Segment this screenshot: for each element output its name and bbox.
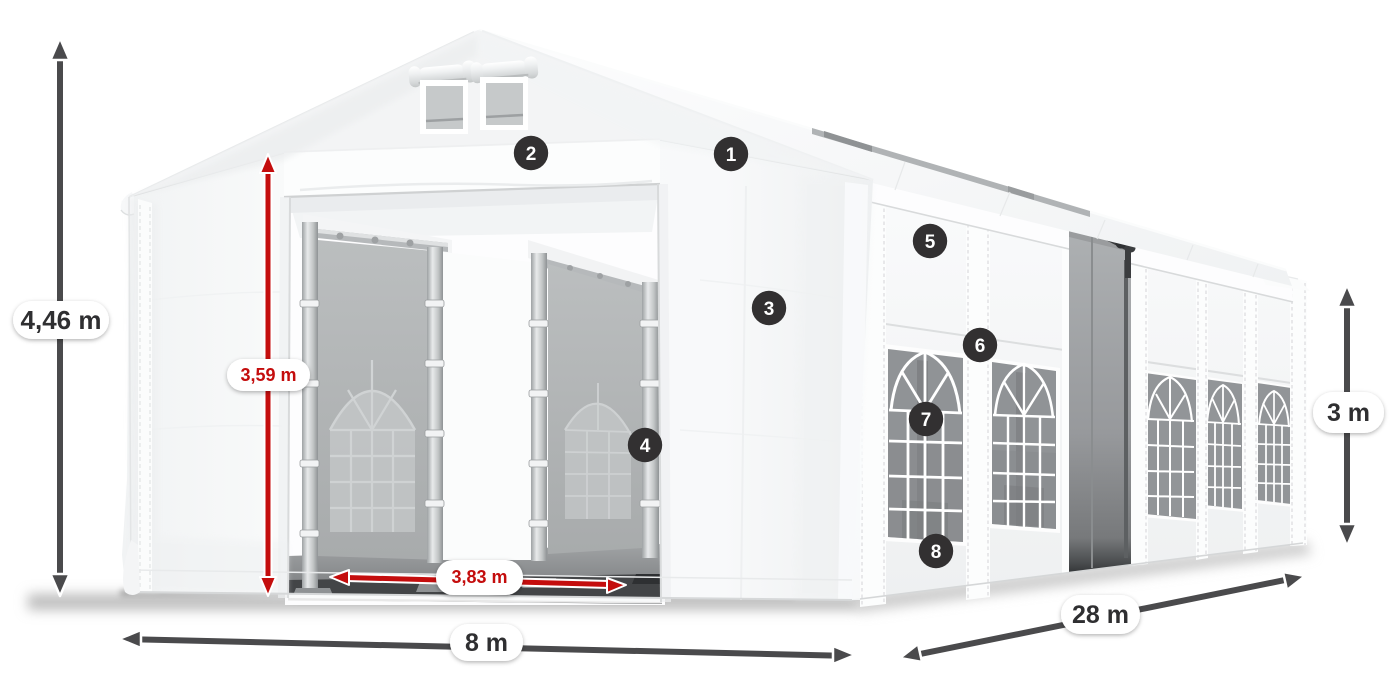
svg-text:8 m: 8 m <box>465 629 508 657</box>
svg-text:3 m: 3 m <box>1327 399 1370 427</box>
svg-text:3: 3 <box>764 299 775 320</box>
svg-text:2: 2 <box>526 144 537 165</box>
svg-text:5: 5 <box>925 232 936 253</box>
svg-text:3,59 m: 3,59 m <box>240 365 296 385</box>
svg-text:6: 6 <box>975 336 986 357</box>
svg-text:4: 4 <box>640 436 651 457</box>
svg-text:4,46 m: 4,46 m <box>21 305 102 335</box>
svg-text:28 m: 28 m <box>1072 601 1129 629</box>
svg-text:8: 8 <box>931 542 942 563</box>
svg-text:1: 1 <box>726 145 737 166</box>
svg-text:7: 7 <box>921 410 932 431</box>
svg-text:3,83 m: 3,83 m <box>451 567 507 587</box>
